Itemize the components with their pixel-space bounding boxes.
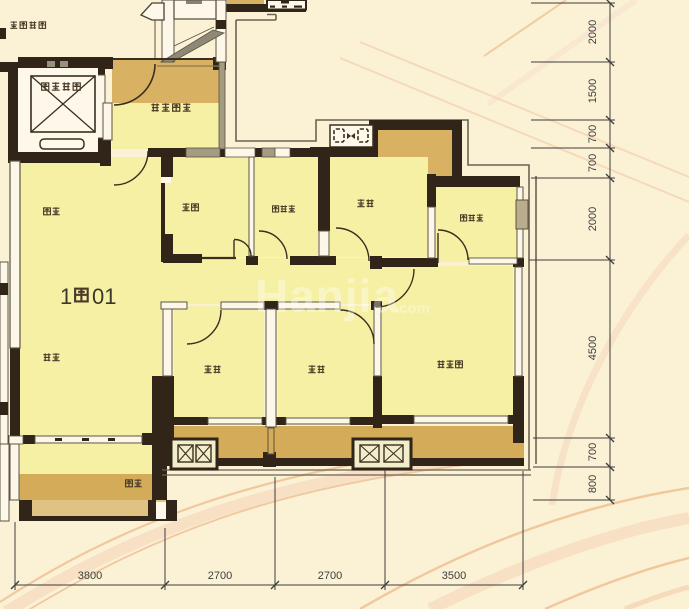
svg-text:4500: 4500 (587, 336, 599, 360)
svg-text:3500: 3500 (442, 570, 466, 582)
svg-text:01: 01 (92, 284, 116, 309)
svg-text:800: 800 (587, 475, 599, 493)
svg-text:2700: 2700 (318, 570, 342, 582)
svg-text:.com: .com (395, 300, 430, 317)
svg-text:700: 700 (587, 125, 599, 143)
svg-text:700: 700 (587, 154, 599, 172)
svg-text:700: 700 (587, 443, 599, 461)
svg-text:2000: 2000 (587, 207, 599, 231)
svg-text:1: 1 (60, 284, 72, 309)
svg-text:2000: 2000 (587, 20, 599, 44)
svg-text:Hanjia: Hanjia (255, 270, 399, 322)
svg-text:3800: 3800 (78, 570, 102, 582)
svg-text:2700: 2700 (208, 570, 232, 582)
svg-text:1500: 1500 (587, 79, 599, 103)
